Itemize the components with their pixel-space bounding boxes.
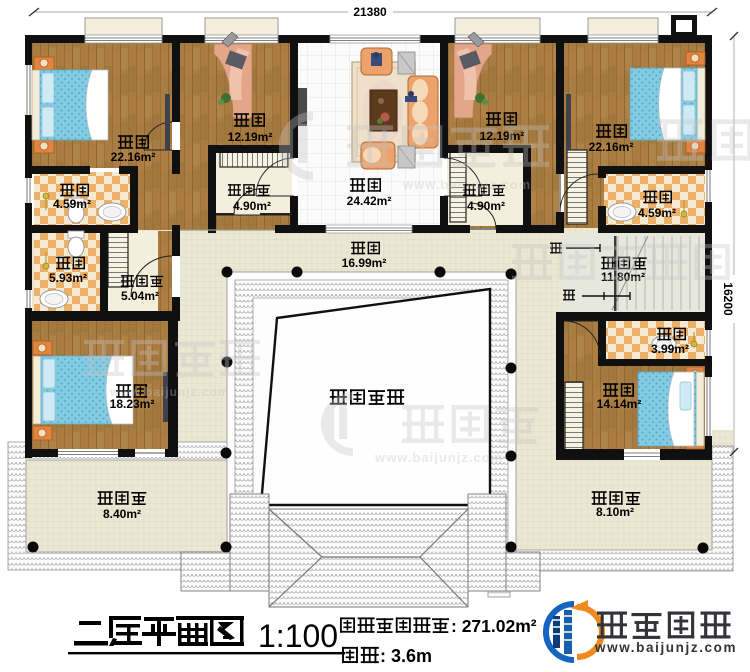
svg-text:22.16m²: 22.16m² xyxy=(589,140,634,154)
svg-text:16200: 16200 xyxy=(721,282,735,316)
svg-text:21380: 21380 xyxy=(353,5,387,19)
svg-text:www.baijunjz.com: www.baijunjz.com xyxy=(109,385,230,399)
svg-text:5.04m²: 5.04m² xyxy=(121,289,159,303)
svg-text:14.14m²: 14.14m² xyxy=(597,397,642,411)
svg-text:4.59m²: 4.59m² xyxy=(638,206,676,220)
svg-text:4.90m²: 4.90m² xyxy=(233,199,271,213)
svg-text:3.99m²: 3.99m² xyxy=(651,342,689,356)
svg-text:8.40m²: 8.40m² xyxy=(103,507,141,521)
svg-text:24.42m²: 24.42m² xyxy=(347,194,392,208)
svg-text:4.59m²: 4.59m² xyxy=(53,197,91,211)
svg-text:12.19m²: 12.19m² xyxy=(228,130,273,144)
svg-text:www.baijunjz.com: www.baijunjz.com xyxy=(594,640,737,655)
svg-text:: 271.02m²: : 271.02m² xyxy=(451,616,537,636)
svg-text:5.93m²: 5.93m² xyxy=(49,271,87,285)
svg-text:1:100: 1:100 xyxy=(258,618,338,654)
svg-text:: 3.6m: : 3.6m xyxy=(380,646,432,666)
svg-text:18.23m²: 18.23m² xyxy=(110,397,155,411)
svg-text:4.90m²: 4.90m² xyxy=(467,199,505,213)
svg-text:www.baijunjz.com: www.baijunjz.com xyxy=(402,177,531,192)
svg-text:8.10m²: 8.10m² xyxy=(596,505,634,519)
svg-text:22.16m²: 22.16m² xyxy=(111,150,156,164)
svg-text:16.99m²: 16.99m² xyxy=(342,256,387,270)
svg-text:www.baijunjz.com: www.baijunjz.com xyxy=(374,450,503,465)
